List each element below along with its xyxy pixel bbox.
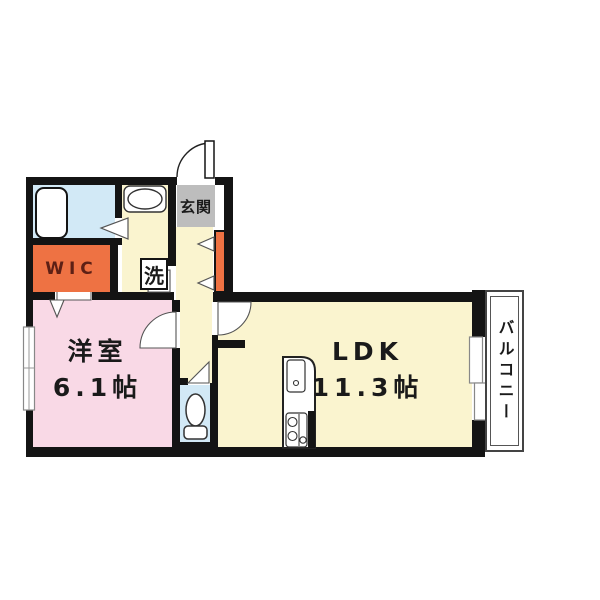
balcony-area: バルコニー xyxy=(485,290,524,452)
entrance-door-icon xyxy=(177,141,214,178)
ldk-size: 11.3帖 xyxy=(312,370,424,406)
floorplan-canvas: 玄関 WIC 洗 洋室 6.1帖 LDK 11.3帖 バルコニー xyxy=(0,0,600,600)
laundry-box: 洗 xyxy=(140,258,168,290)
balcony-label: バルコニー xyxy=(493,319,517,424)
western-room-label: 洋室 6.1帖 xyxy=(30,330,165,410)
bathroom-door-icon xyxy=(101,218,128,239)
genkan-label: 玄関 xyxy=(177,185,215,227)
washbasin-icon xyxy=(124,186,166,212)
western-room-name: 洋室 xyxy=(67,334,127,370)
ldk-label: LDK 11.3帖 xyxy=(275,330,460,410)
ldk-name: LDK xyxy=(332,334,403,370)
ldk-door-icon xyxy=(218,302,251,335)
wic-label: WIC xyxy=(33,245,110,292)
cabinet-door-icons xyxy=(198,237,214,290)
balcony-inner-rail: バルコニー xyxy=(490,296,519,446)
western-room-size: 6.1帖 xyxy=(53,370,142,406)
wic-door-icon xyxy=(50,291,91,317)
bathtub-icon xyxy=(36,188,67,238)
toilet-door-icon xyxy=(188,362,209,383)
toilet-icon xyxy=(184,394,207,439)
